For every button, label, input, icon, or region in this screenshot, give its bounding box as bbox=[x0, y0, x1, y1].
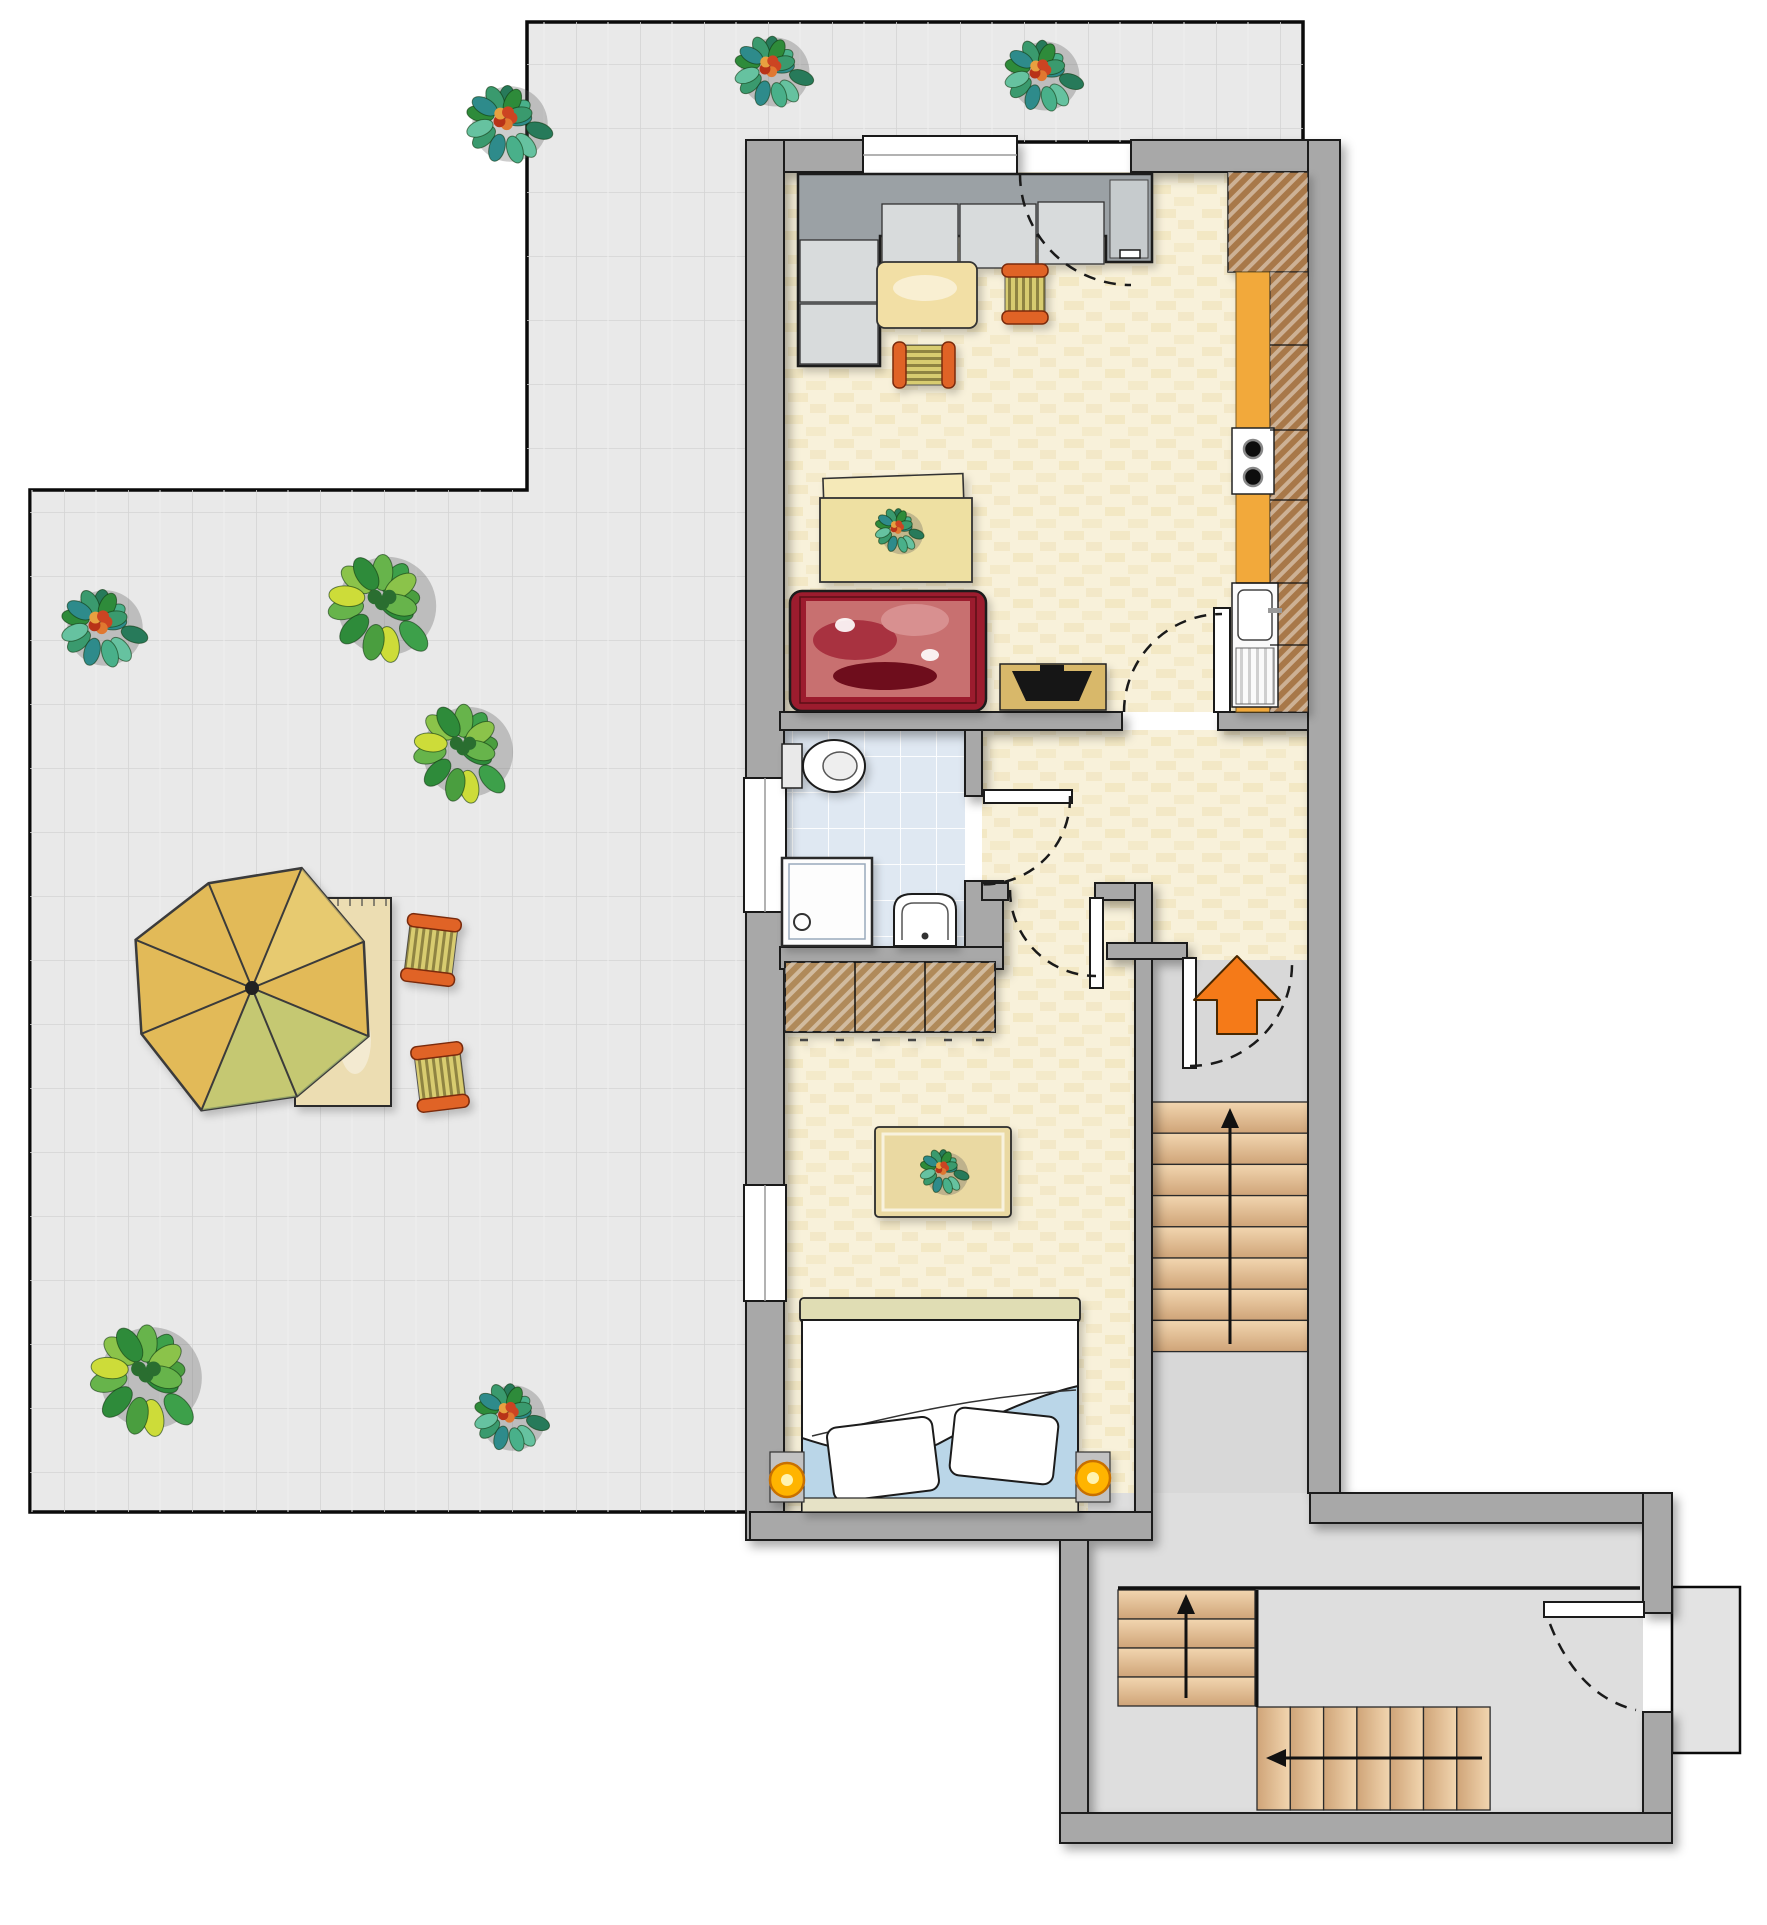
bedside-lamp-glow bbox=[1087, 1472, 1099, 1484]
stairs-entry-flight bbox=[1257, 1707, 1490, 1810]
sink-drainer bbox=[1236, 648, 1274, 704]
plant-berry bbox=[767, 55, 778, 66]
chair-seat-stripes bbox=[1005, 274, 1045, 314]
sink-faucet bbox=[1268, 608, 1282, 613]
stove-burner bbox=[1244, 440, 1262, 458]
outside-pad bbox=[1672, 1587, 1740, 1753]
toilet-tank bbox=[782, 744, 802, 788]
wall-kitchen-bottom bbox=[1218, 712, 1308, 730]
plant-core bbox=[146, 1361, 161, 1376]
tv-top bbox=[1040, 665, 1064, 672]
bed-pillow bbox=[949, 1407, 1060, 1485]
bed-foot-rail bbox=[802, 1498, 1078, 1512]
chair-seat-stripes bbox=[903, 345, 945, 385]
wall-stairwell-left bbox=[1060, 1540, 1088, 1843]
wall-stairwell-right-upper bbox=[1643, 1493, 1672, 1613]
shower bbox=[782, 858, 872, 946]
bed-headboard bbox=[800, 1298, 1080, 1322]
door-bathroom-leaf bbox=[984, 790, 1072, 803]
chair-back bbox=[1002, 264, 1048, 277]
bed-pillow bbox=[826, 1416, 940, 1502]
bedside-lamp-glow bbox=[781, 1474, 793, 1486]
armchair bbox=[893, 342, 955, 388]
plant-berry bbox=[1037, 59, 1048, 70]
wall-living-bottom bbox=[780, 712, 1122, 730]
wall-stairwell-right-lower bbox=[1643, 1712, 1672, 1813]
sink-basin bbox=[1238, 590, 1272, 640]
wall-bedroom-right bbox=[1135, 883, 1152, 1512]
terrace-chair bbox=[410, 1041, 470, 1113]
sofa-cushion bbox=[1038, 202, 1104, 264]
plant-berry bbox=[97, 610, 109, 622]
door-apartment-entry-leaf bbox=[1183, 958, 1196, 1068]
sofa-cushion bbox=[800, 240, 878, 302]
red-sofa-spot bbox=[835, 618, 855, 632]
door-kitchen-leaf bbox=[1214, 608, 1230, 712]
wall-bath-right-upper bbox=[965, 730, 982, 796]
wall-right-outer bbox=[1308, 140, 1340, 1493]
plant-core bbox=[463, 737, 476, 750]
terrace-chair bbox=[400, 913, 462, 987]
door-bedroom-leaf bbox=[1090, 898, 1103, 988]
toilet-bowl-inner bbox=[823, 752, 857, 780]
red-sofa-shade bbox=[881, 604, 949, 636]
door-balcony-stop bbox=[1120, 250, 1140, 258]
plant-berry bbox=[502, 106, 514, 118]
stairs-lower-flight bbox=[1118, 1590, 1255, 1706]
red-sofa-shade bbox=[833, 662, 937, 690]
washbasin-drain bbox=[922, 933, 929, 940]
door-building-entry-leaf bbox=[1544, 1602, 1644, 1617]
plant-berry bbox=[505, 1402, 515, 1412]
plant-berry bbox=[940, 1161, 947, 1168]
sofa-cushion bbox=[800, 304, 878, 364]
plant-core bbox=[382, 590, 396, 604]
chair-front bbox=[1002, 311, 1048, 324]
red-sofa-spot bbox=[921, 649, 939, 661]
sofa-cushion bbox=[960, 204, 1036, 268]
wall-stairwell-bottom bbox=[1060, 1813, 1672, 1843]
sofa-armrest bbox=[1110, 180, 1148, 258]
plant-berry bbox=[895, 520, 902, 527]
stove-burner bbox=[1244, 468, 1262, 486]
armchair bbox=[1002, 264, 1048, 324]
kitchen-tall-cabinet-hatch bbox=[1228, 172, 1308, 272]
wall-entry-jamb bbox=[1107, 943, 1187, 959]
parasol-pole bbox=[245, 981, 259, 995]
chair-back bbox=[893, 342, 906, 388]
floor-plan-image bbox=[0, 0, 1767, 1925]
stairs-main-flight bbox=[1152, 1102, 1308, 1352]
wardrobe-hatch bbox=[785, 962, 995, 1032]
tv bbox=[1012, 671, 1092, 701]
floor-plan-svg bbox=[0, 0, 1767, 1925]
chair-front bbox=[942, 342, 955, 388]
wall-stairwell-top bbox=[1310, 1493, 1672, 1523]
coffee-table-sheen bbox=[893, 275, 957, 301]
wall-bedroom-bottom bbox=[750, 1512, 1152, 1540]
sofa-cushion bbox=[882, 204, 958, 268]
